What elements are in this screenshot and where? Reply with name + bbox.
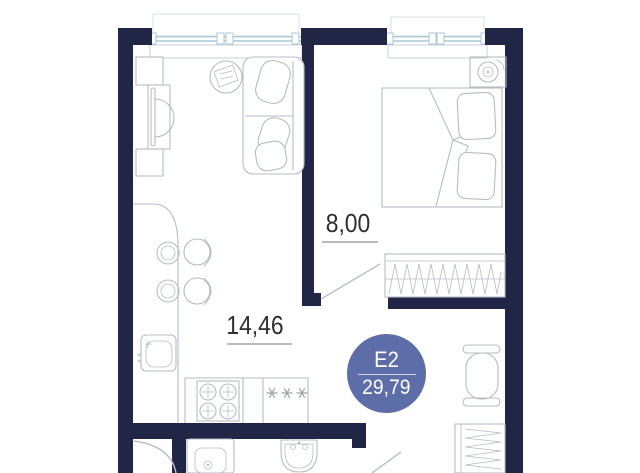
- living-area-underline: [227, 343, 292, 345]
- unit-badge-label: E2: [374, 348, 399, 371]
- hall-door-arc: [134, 441, 176, 473]
- armchair: [463, 345, 500, 406]
- appliance-stars-icon: [267, 388, 308, 398]
- bed: [382, 88, 502, 207]
- tv-stand: [136, 57, 174, 176]
- left-window: [149, 33, 302, 58]
- bar-stools: [157, 239, 211, 305]
- kitchen-sink: [138, 335, 176, 371]
- bedroom-wardrobe: [385, 254, 505, 297]
- unit-badge-divider: [358, 374, 416, 375]
- shower-tray: [187, 439, 234, 473]
- washbasin: [281, 440, 317, 472]
- bar-counter: [133, 204, 178, 423]
- living-area-label: 14,46: [217, 310, 293, 341]
- bedroom-door-swing: [321, 264, 380, 299]
- sofa: [243, 57, 304, 174]
- pouf-with-tray: [210, 61, 242, 93]
- stove: [197, 381, 239, 421]
- entry-door-swing: [372, 452, 401, 473]
- unit-badge: E2 29,79: [347, 334, 426, 413]
- hall-wardrobe: [455, 424, 505, 473]
- right-window: [386, 33, 488, 58]
- ac-unit-icon: [470, 57, 506, 87]
- kitchen-counter: [185, 378, 308, 423]
- floor-plan: 8,00 14,46 E2 29,79: [0, 0, 640, 473]
- bedroom-area-label: 8,00: [313, 208, 383, 239]
- unit-badge-area: 29,79: [362, 376, 410, 399]
- bedroom-area-underline: [322, 241, 378, 243]
